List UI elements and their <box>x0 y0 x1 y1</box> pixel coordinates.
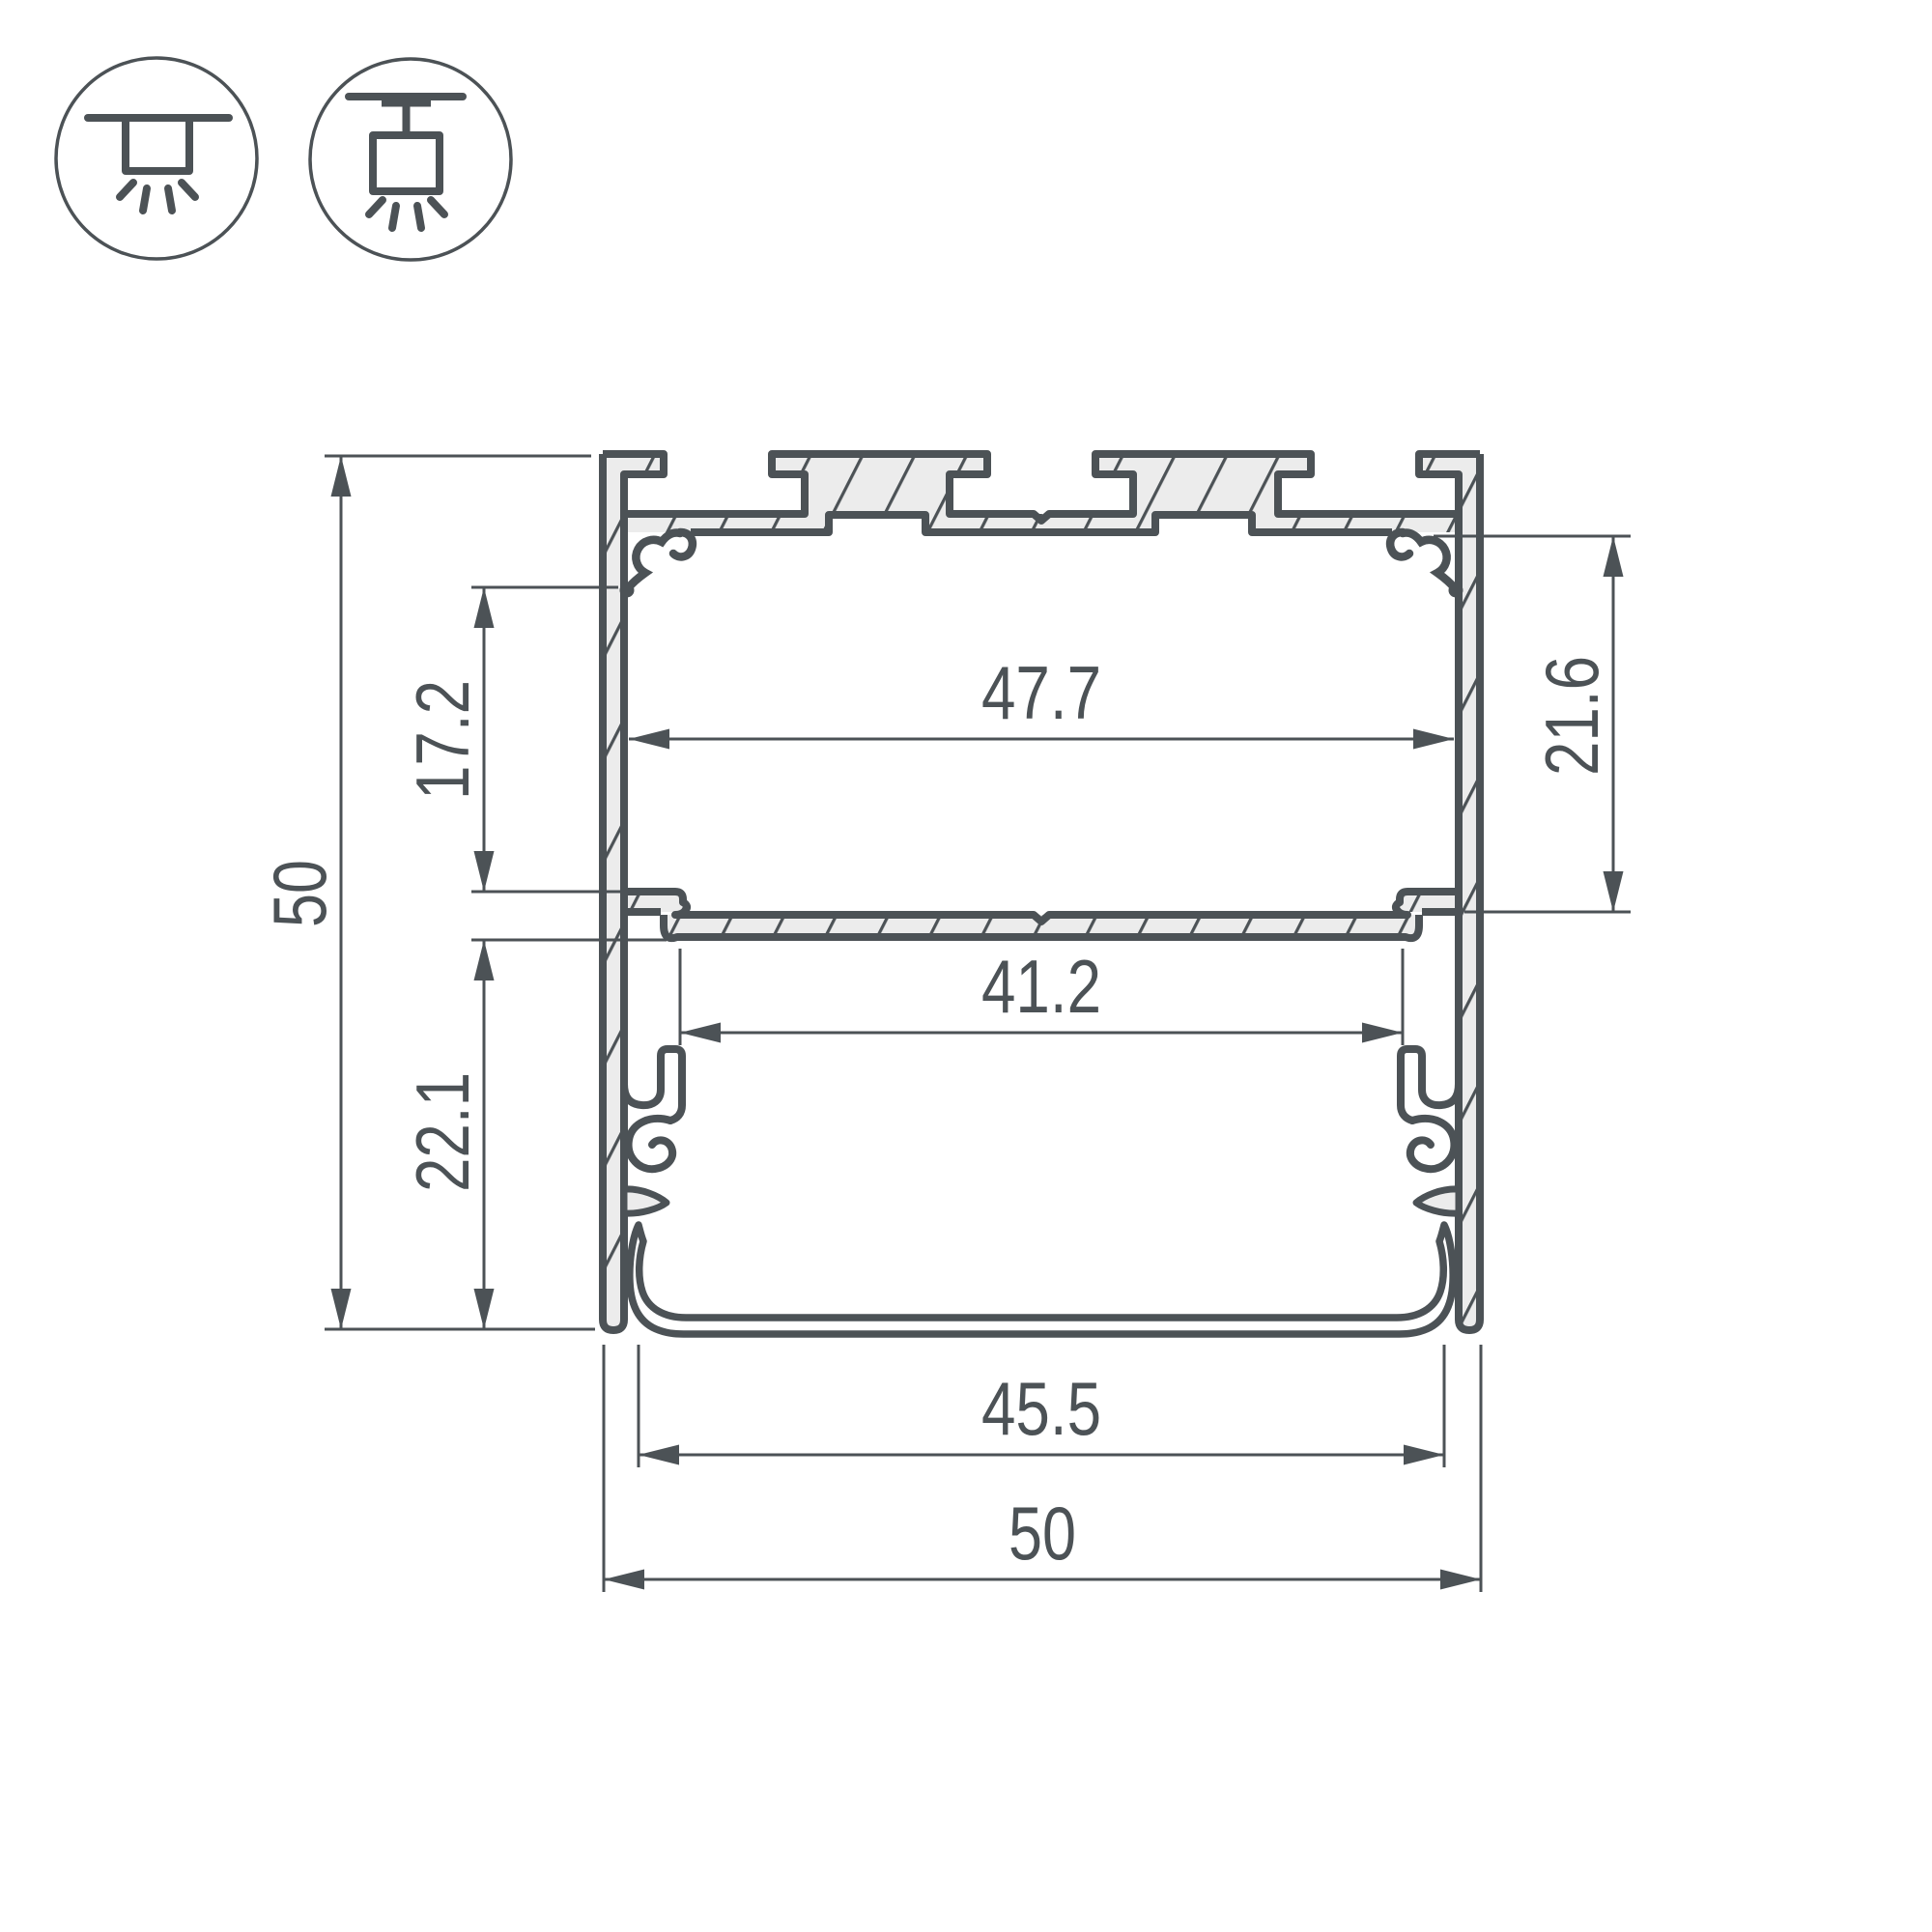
svg-text:21.6: 21.6 <box>1529 656 1614 776</box>
svg-text:41.2: 41.2 <box>981 944 1101 1029</box>
svg-text:50: 50 <box>1009 1491 1076 1576</box>
svg-text:22.1: 22.1 <box>400 1072 485 1192</box>
svg-text:17.2: 17.2 <box>400 680 485 800</box>
svg-text:47.7: 47.7 <box>981 650 1101 735</box>
svg-text:45.5: 45.5 <box>981 1366 1101 1451</box>
svg-text:50: 50 <box>257 860 342 927</box>
